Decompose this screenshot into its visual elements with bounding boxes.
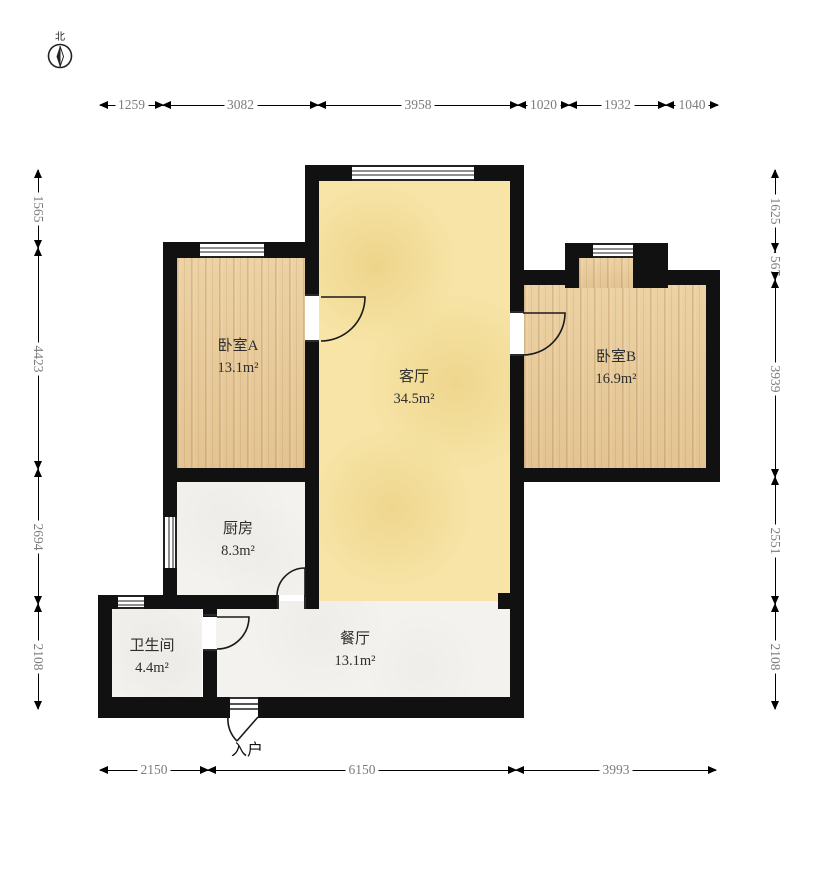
entry-door-frame: [230, 697, 258, 718]
dimension-segment: 3939: [775, 280, 776, 477]
wall: [258, 697, 524, 718]
wall: [565, 243, 593, 258]
door-jamb: [305, 340, 319, 342]
living-room-window: [352, 165, 474, 181]
kitchen-label: 厨房 8.3m²: [221, 518, 255, 562]
wall: [163, 468, 319, 482]
compass-icon: [46, 42, 74, 70]
wall: [98, 697, 230, 718]
wall: [498, 593, 510, 609]
door-jamb: [203, 614, 217, 616]
dimension-segment: 3958: [318, 105, 518, 106]
door-jamb: [305, 294, 319, 296]
dimension-label: 3993: [600, 762, 633, 778]
dimension-label: 1040: [676, 97, 709, 113]
dimension-label: 4423: [30, 342, 46, 375]
dimension-segment: 1259: [100, 105, 163, 106]
dimension-segment: 2551: [775, 477, 776, 604]
dimension-label: 6150: [346, 762, 379, 778]
wall: [264, 242, 319, 258]
bedroom-b-bay-floor: [579, 258, 633, 288]
dimension-segment: 2150: [100, 770, 208, 771]
dimension-segment: 2108: [38, 604, 39, 709]
bedroom-a-window: [200, 242, 264, 258]
living-room-label: 客厅 34.5m²: [393, 366, 434, 410]
dimension-segment: 4423: [38, 248, 39, 469]
wall: [510, 355, 524, 597]
dimension-label: 2694: [30, 520, 46, 553]
wall: [144, 595, 203, 609]
dimension-label: 2108: [30, 640, 46, 673]
dimension-segment: 3082: [163, 105, 318, 106]
wall: [510, 165, 524, 312]
dimension-segment: 6150: [208, 770, 516, 771]
dimension-segment: 1020: [518, 105, 569, 106]
kitchen-window: [163, 517, 177, 568]
dimension-label: 3939: [767, 362, 783, 395]
dimension-segment: 2694: [38, 469, 39, 604]
dimension-segment: 3993: [516, 770, 716, 771]
wall: [524, 270, 569, 285]
dimension-segment: 1040: [666, 105, 718, 106]
dimension-label: 567: [767, 252, 783, 278]
wall: [510, 597, 524, 718]
dining-room-label: 餐厅 13.1m²: [334, 628, 375, 672]
wall: [706, 270, 720, 482]
dimension-label: 1259: [115, 97, 148, 113]
dimension-segment: 2108: [775, 604, 776, 709]
wall: [524, 468, 720, 482]
dimension-segment: 1625: [775, 170, 776, 251]
dimension-label: 1932: [601, 97, 634, 113]
bathroom-window: [118, 595, 144, 609]
dimension-label: 2150: [138, 762, 171, 778]
dimension-label: 1020: [527, 97, 560, 113]
dimension-segment: 1932: [569, 105, 666, 106]
door-jamb: [277, 595, 279, 609]
bedroom-a-label: 卧室A 13.1m²: [217, 335, 258, 379]
dimension-label: 2108: [767, 640, 783, 673]
wall: [305, 165, 319, 296]
dimension-segment: 1565: [38, 170, 39, 248]
entry-label: 入户: [231, 736, 263, 760]
dimension-label: 3958: [402, 97, 435, 113]
door-jamb: [304, 595, 306, 609]
compass-north-label: 北: [55, 28, 65, 43]
dimension-label: 1565: [30, 193, 46, 226]
dimension-label: 2551: [767, 524, 783, 557]
dimension-label: 3082: [224, 97, 257, 113]
dimension-segment: 567: [775, 251, 776, 280]
bedroom-b-window: [593, 243, 633, 258]
floor-plan: 北: [0, 0, 814, 880]
door-jamb: [203, 649, 217, 651]
wall: [306, 595, 319, 609]
door-jamb: [510, 311, 524, 313]
bedroom-b-label: 卧室B 16.9m²: [595, 346, 636, 390]
bathroom-label: 卫生间 4.4m²: [129, 635, 174, 679]
dimension-label: 1625: [767, 194, 783, 227]
door-jamb: [510, 354, 524, 356]
